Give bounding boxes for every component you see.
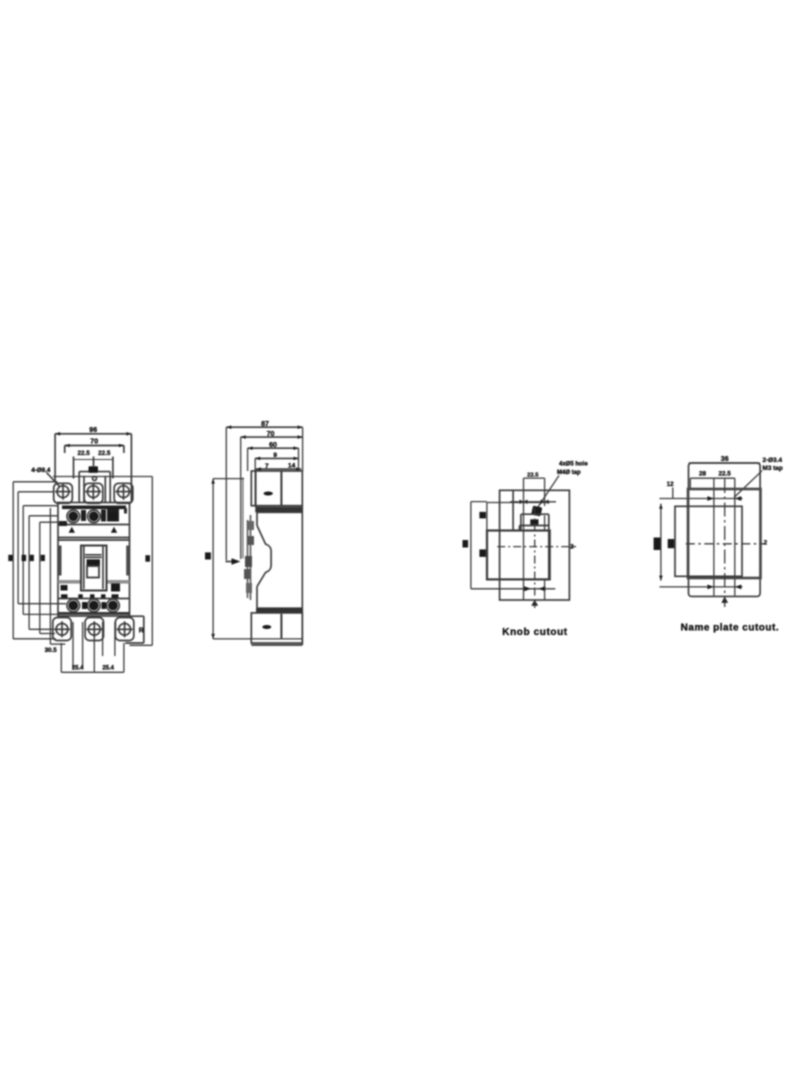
svg-text:22.5: 22.5 xyxy=(77,450,90,457)
svg-text:14: 14 xyxy=(288,463,296,470)
svg-text:2-Ø3.4: 2-Ø3.4 xyxy=(763,457,783,464)
svg-text:2: 2 xyxy=(570,545,574,551)
svg-text:30.5: 30.5 xyxy=(45,647,58,654)
svg-text:4-Ø8.4: 4-Ø8.4 xyxy=(31,467,51,474)
svg-text:R: R xyxy=(139,627,144,634)
svg-text:70: 70 xyxy=(90,439,98,446)
svg-text:2: 2 xyxy=(764,541,768,547)
svg-text:22.5: 22.5 xyxy=(718,471,731,478)
svg-text:36: 36 xyxy=(721,456,729,463)
svg-text:28: 28 xyxy=(699,471,707,478)
svg-text:M4Ø tap: M4Ø tap xyxy=(557,470,581,476)
svg-text:22.5: 22.5 xyxy=(98,450,111,457)
svg-text:60: 60 xyxy=(269,442,277,449)
svg-text:70: 70 xyxy=(267,431,275,438)
svg-text:Knob cutout: Knob cutout xyxy=(502,627,568,638)
svg-text:12: 12 xyxy=(667,481,675,488)
svg-text:96: 96 xyxy=(89,427,97,434)
svg-text:25.4: 25.4 xyxy=(72,666,84,672)
svg-text:9: 9 xyxy=(273,452,277,459)
svg-text:Name plate cutout.: Name plate cutout. xyxy=(681,622,779,633)
svg-text:7: 7 xyxy=(265,463,269,470)
svg-text:4xØ5 hole: 4xØ5 hole xyxy=(559,462,588,468)
svg-text:25.4: 25.4 xyxy=(102,666,114,672)
svg-text:87: 87 xyxy=(261,421,269,428)
svg-text:M3 tap: M3 tap xyxy=(763,465,783,472)
